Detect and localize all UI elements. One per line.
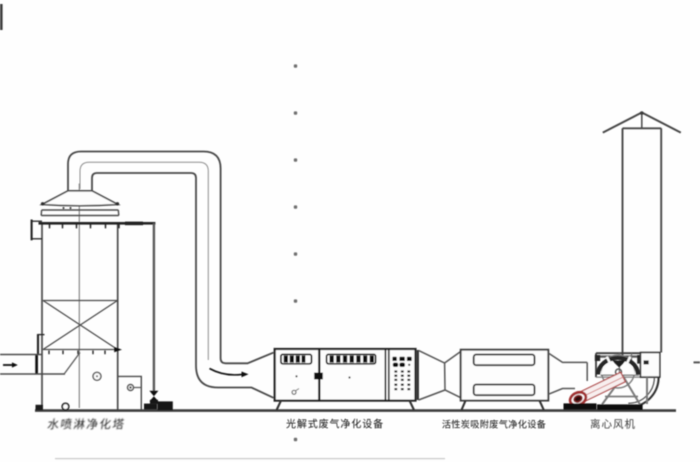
svg-text:水喷淋净化塔: 水喷淋净化塔 (47, 417, 127, 431)
svg-text:活性炭吸附废气净化设备: 活性炭吸附废气净化设备 (442, 419, 546, 430)
svg-text:光解式废气净化设备: 光解式废气净化设备 (286, 418, 384, 431)
svg-text:离心风机: 离心风机 (590, 418, 636, 431)
